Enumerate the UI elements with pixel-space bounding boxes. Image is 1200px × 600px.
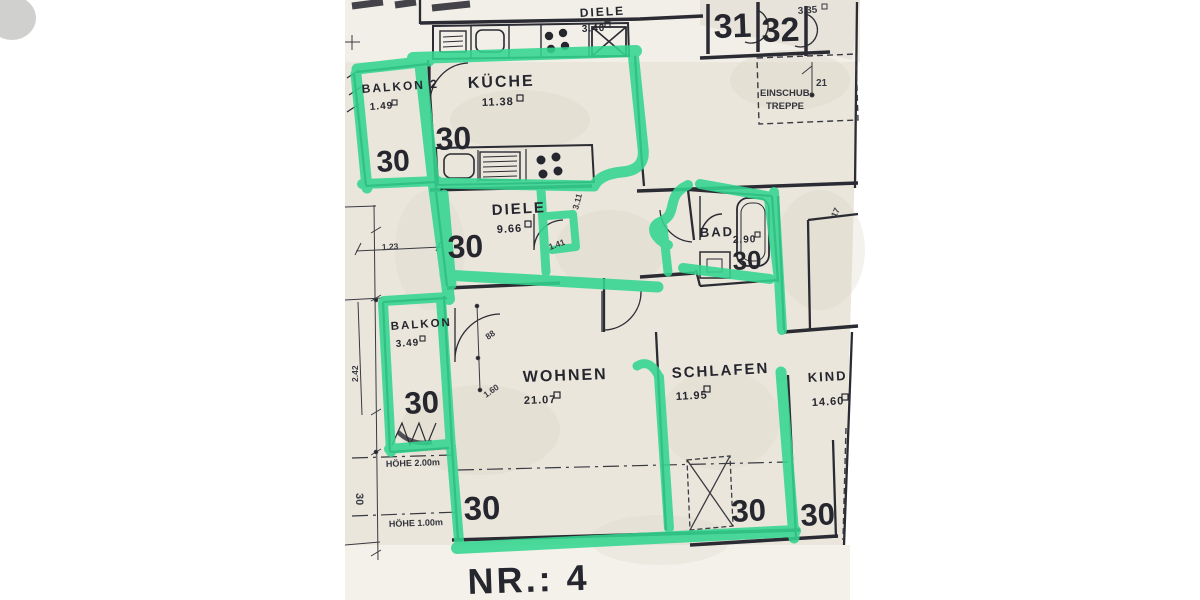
room-area-balkon: 3.49	[395, 337, 419, 350]
dim-1-23: 1.23	[382, 241, 399, 252]
room-label-diele-top: DIELE	[579, 4, 625, 20]
note-einschub: EINSCHUB-	[760, 88, 813, 99]
dim-21: 21	[816, 78, 828, 89]
unit-number-30: 30	[404, 384, 440, 421]
unit-number-32: 32	[761, 11, 800, 50]
room-area-kind: 14.60	[812, 395, 845, 409]
floor-plan-svg: KÜCHE 11.38 BALKON 2 1.49 30 30 DIELE 3.…	[0, 0, 1200, 600]
room-area-wohnen: 21.07	[524, 394, 557, 407]
highlighter-stroke	[433, 183, 592, 186]
unit-number-30-side: 30	[353, 493, 365, 505]
room-label-diele: DIELE	[491, 199, 546, 219]
room-label-kind: KIND	[807, 368, 848, 385]
dim-3-35: 3.35	[797, 5, 818, 17]
unit-number-30: 30	[376, 144, 411, 179]
unit-number-30: 30	[463, 489, 501, 527]
dim-2-42: 2.42	[350, 365, 360, 382]
highlighter-stroke	[413, 51, 636, 58]
highlighter-stroke	[663, 227, 668, 272]
unit-number-30: 30	[800, 496, 836, 533]
unit-number-30: 30	[732, 245, 762, 276]
unit-number-31: 31	[713, 7, 752, 46]
room-area-kueche: 11.38	[482, 96, 514, 109]
room-label-kueche: KÜCHE	[467, 71, 535, 92]
note-treppe: TREPPE	[766, 101, 804, 112]
note-hoehe-1m: HÖHE 1.00m	[389, 517, 443, 529]
highlighter-stroke	[362, 181, 438, 184]
unit-number-30: 30	[731, 492, 767, 529]
paper-light-band-bottom	[345, 545, 850, 600]
room-area-diele-top: 3.40	[582, 23, 606, 35]
room-area-diele: 9.66	[497, 223, 523, 236]
note-hoehe-2m: HÖHE 2.00m	[386, 457, 440, 469]
scan-corner-smudge	[0, 0, 36, 40]
room-area-balkon2: 1.49	[369, 100, 393, 113]
floor-plan-scan: KÜCHE 11.38 BALKON 2 1.49 30 30 DIELE 3.…	[0, 0, 1200, 600]
unit-number-30: 30	[447, 228, 484, 265]
room-label-bad: BAD	[700, 224, 735, 240]
highlighter-stroke	[389, 444, 448, 449]
room-label-wohnen: WOHNEN	[523, 366, 608, 386]
room-area-schlafen: 11.95	[676, 389, 709, 403]
plan-number-title: NR.: 4	[467, 557, 590, 600]
unit-number-30: 30	[435, 120, 472, 157]
